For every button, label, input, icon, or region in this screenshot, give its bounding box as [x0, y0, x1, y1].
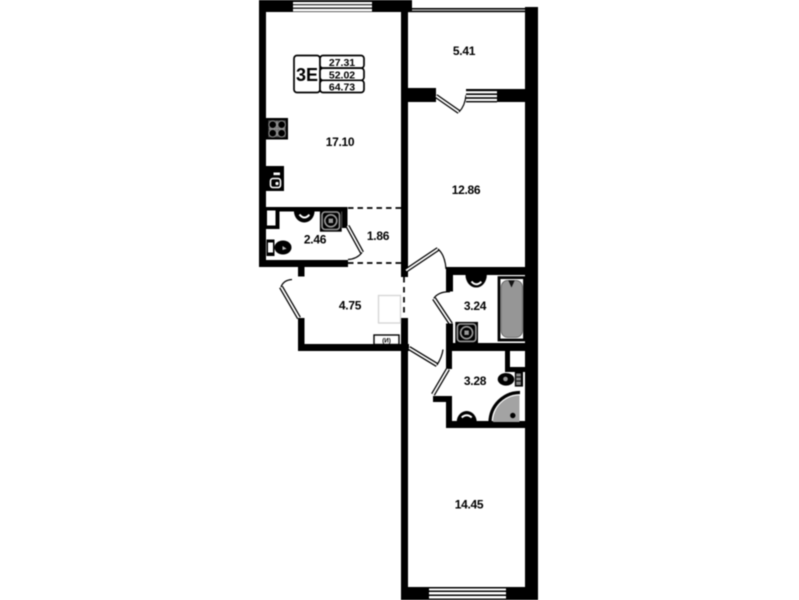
- svg-text:64.73: 64.73: [329, 82, 355, 94]
- svg-text:3Е: 3Е: [296, 65, 318, 85]
- svg-text:4.75: 4.75: [339, 299, 362, 313]
- svg-text:(И): (И): [382, 337, 391, 344]
- svg-text:3.28: 3.28: [464, 374, 487, 388]
- svg-text:1.86: 1.86: [367, 229, 390, 243]
- svg-text:2.46: 2.46: [304, 233, 327, 247]
- svg-text:27.31: 27.31: [329, 57, 355, 69]
- svg-text:5.41: 5.41: [453, 44, 476, 58]
- svg-text:14.45: 14.45: [455, 498, 484, 512]
- svg-text:3.24: 3.24: [464, 299, 487, 313]
- svg-text:52.02: 52.02: [329, 70, 355, 82]
- svg-text:12.86: 12.86: [452, 183, 481, 197]
- svg-text:17.10: 17.10: [326, 135, 355, 149]
